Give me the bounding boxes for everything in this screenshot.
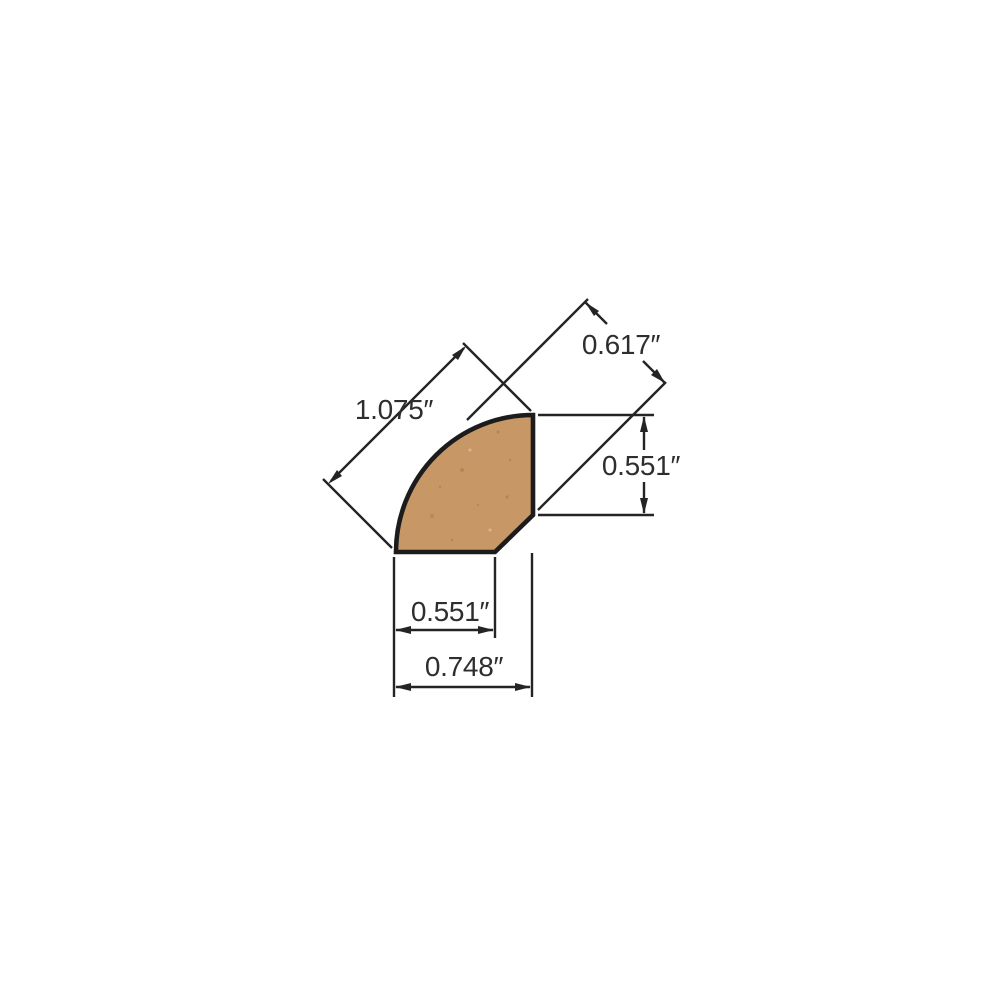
- dimension-label-corner-diagonal: 0.617″: [582, 331, 660, 359]
- arrow-up-icon: [640, 416, 648, 432]
- molding-cross-section: [396, 415, 533, 552]
- arrow-left-icon: [395, 626, 411, 634]
- dimension-label-side-height: 0.551″: [602, 452, 680, 480]
- profile-geometry: [0, 0, 1000, 1000]
- arrow-down-icon: [640, 498, 648, 514]
- dimension-label-face-diagonal: 1.075″: [355, 396, 433, 424]
- ext-diag-arc-tangent: [467, 299, 588, 420]
- ext-diag-top-corner: [463, 343, 531, 411]
- ext-diag-chamfer-extension: [538, 382, 666, 510]
- dimension-label-leg-width: 0.551″: [411, 598, 489, 626]
- dimension-drawing: 1.075″ 0.617″ 0.551″ 0.551″ 0.748″: [0, 0, 1000, 1000]
- arrow-right-icon: [515, 683, 531, 691]
- arrow-left-icon: [395, 683, 411, 691]
- ext-diag-bottom-corner: [323, 479, 392, 548]
- arrow-right-icon: [478, 626, 494, 634]
- dimension-label-overall-width: 0.748″: [425, 653, 503, 681]
- molding-profile-shape: [396, 415, 533, 552]
